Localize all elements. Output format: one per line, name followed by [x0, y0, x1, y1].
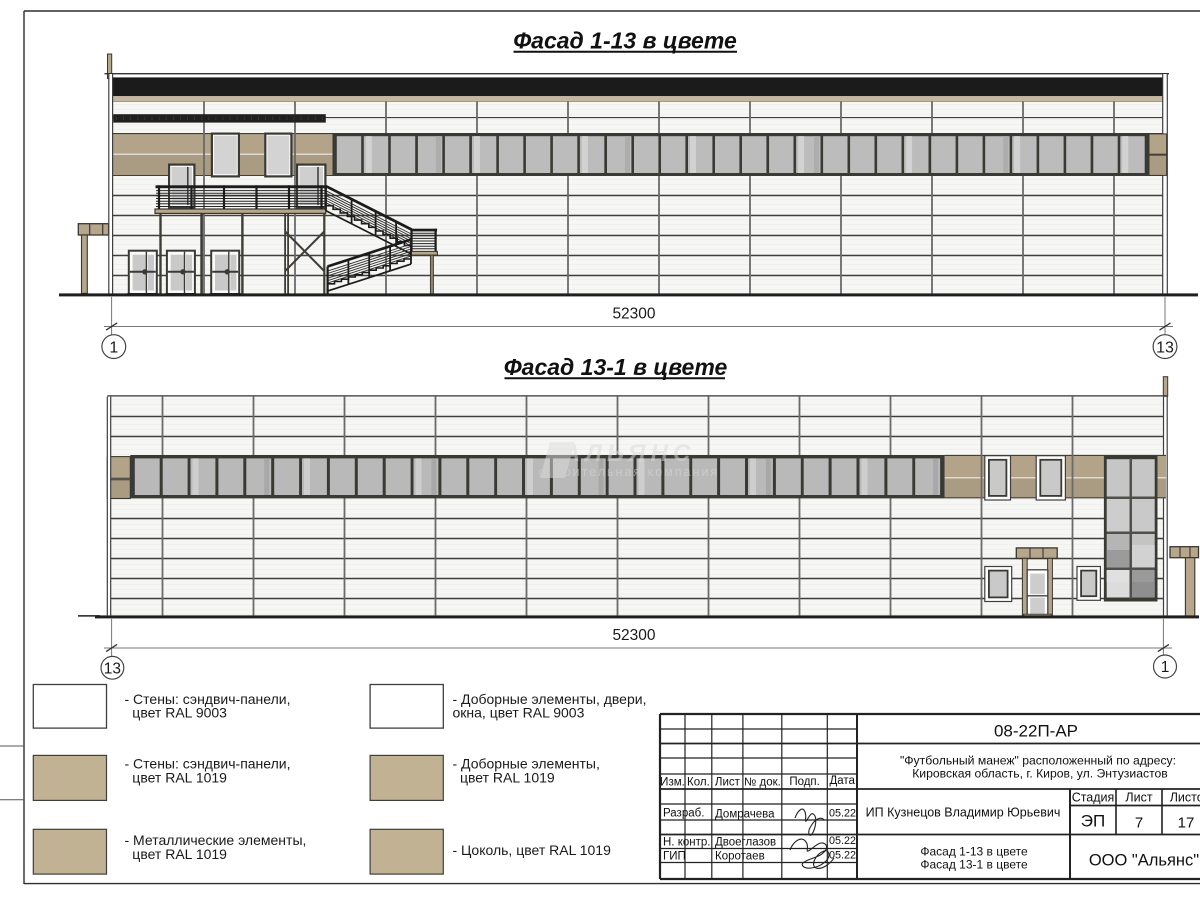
svg-text:Лист: Лист — [1125, 791, 1152, 805]
svg-text:цвет RAL 1019: цвет RAL 1019 — [132, 769, 227, 785]
svg-text:Фасад 1-13 в цвете: Фасад 1-13 в цвете — [920, 845, 1028, 859]
svg-text:Кол.: Кол. — [687, 777, 710, 789]
svg-text:Домрачева: Домрачева — [715, 809, 775, 821]
svg-text:17: 17 — [1178, 815, 1195, 832]
svg-text:1: 1 — [1161, 659, 1170, 676]
svg-text:цвет RAL 1019: цвет RAL 1019 — [132, 846, 227, 862]
svg-text:"Футбольный манеж" расположенн: "Футбольный манеж" расположенный по адре… — [900, 754, 1176, 768]
svg-text:Фасад 13-1 в цвете: Фасад 13-1 в цвете — [504, 354, 728, 380]
svg-text:52300: 52300 — [612, 627, 655, 644]
svg-text:7: 7 — [1135, 815, 1143, 832]
svg-text:Фасад 1-13 в цвете: Фасад 1-13 в цвете — [513, 28, 737, 54]
svg-text:цвет RAL 9003: цвет RAL 9003 — [132, 705, 227, 721]
svg-text:АЛЬЯНС: АЛЬЯНС — [562, 440, 695, 467]
svg-text:ИП Кузнецов Владимир Юрьевич: ИП Кузнецов Владимир Юрьевич — [866, 806, 1061, 820]
svg-text:Кировская область, г. Киров, у: Кировская область, г. Киров, ул. Энтузиа… — [912, 767, 1168, 781]
svg-text:Разраб.: Разраб. — [663, 808, 704, 820]
svg-text:05.22: 05.22 — [829, 808, 856, 820]
svg-text:Фасад 13-1 в цвете: Фасад 13-1 в цвете — [920, 858, 1028, 872]
svg-text:05.22: 05.22 — [829, 835, 856, 847]
svg-text:13: 13 — [104, 660, 121, 677]
svg-text:Изм.: Изм. — [660, 777, 685, 789]
svg-text:Двоеглазов: Двоеглазов — [715, 837, 776, 849]
svg-text:08-22П-АР: 08-22П-АР — [994, 722, 1078, 741]
svg-text:Стадия: Стадия — [1072, 791, 1115, 805]
svg-text:13: 13 — [1156, 339, 1174, 356]
svg-text:ООО "Альянс": ООО "Альянс" — [1089, 852, 1199, 870]
svg-text:Подп.: Подп. — [789, 776, 820, 788]
svg-text:№ док.: № док. — [744, 777, 781, 789]
svg-text:- Цоколь, цвет RAL 1019: - Цоколь, цвет RAL 1019 — [453, 842, 612, 858]
svg-text:Н. контр.: Н. контр. — [663, 837, 710, 849]
svg-text:окна, цвет RAL 9003: окна, цвет RAL 9003 — [453, 705, 585, 721]
svg-text:ГИП: ГИП — [663, 851, 686, 863]
svg-text:Дата: Дата — [829, 775, 855, 787]
svg-text:52300: 52300 — [612, 306, 655, 323]
svg-text:цвет RAL 1019: цвет RAL 1019 — [460, 769, 555, 785]
svg-text:Лист: Лист — [715, 777, 741, 789]
svg-text:Коротаев: Коротаев — [715, 851, 765, 863]
svg-text:ЭП: ЭП — [1081, 812, 1105, 831]
svg-text:Листов: Листов — [1170, 791, 1200, 805]
svg-text:1: 1 — [109, 339, 118, 356]
